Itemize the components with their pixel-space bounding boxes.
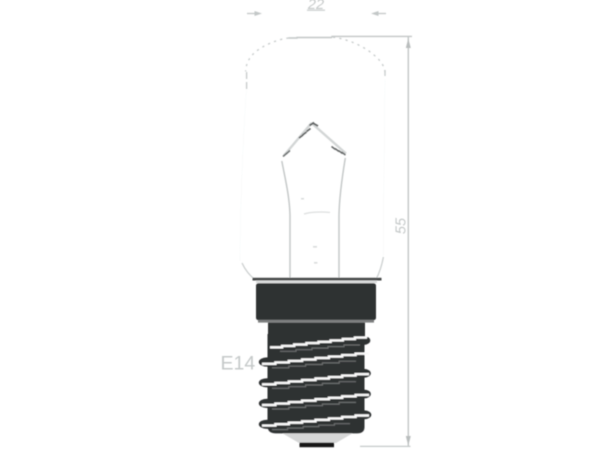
svg-text:E14: E14 <box>221 353 256 375</box>
svg-text:22: 22 <box>307 0 324 13</box>
svg-text:55: 55 <box>394 217 410 234</box>
